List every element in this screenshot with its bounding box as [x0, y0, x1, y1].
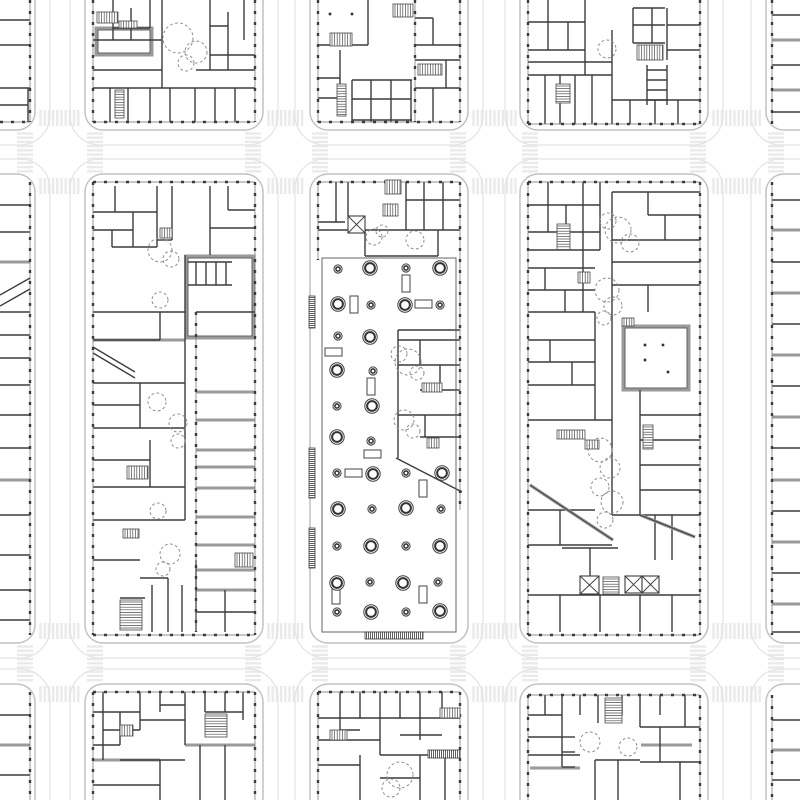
column-circle-icon: [433, 261, 447, 275]
column-circle-icon: [433, 604, 447, 618]
column-circle-icon: [367, 437, 375, 445]
planter-rect: [345, 469, 362, 477]
block-outline: [310, 0, 468, 130]
stair-icon: [97, 12, 118, 23]
column-circle-icon: [330, 430, 344, 444]
stair-icon: [637, 45, 663, 60]
column-circle-icon: [369, 367, 377, 375]
column-circle-icon: [334, 265, 342, 273]
stair-icon: [385, 180, 401, 194]
column-dot: [662, 344, 665, 347]
column-circle-icon: [333, 402, 341, 410]
thick-wall-room: [623, 326, 689, 390]
stair-icon: [115, 90, 124, 118]
column-circle-icon: [364, 539, 378, 553]
column-dot: [644, 359, 647, 362]
block-bot-far-left: [0, 669, 50, 800]
column-circle-icon: [363, 261, 377, 275]
column-circle-icon: [396, 576, 410, 590]
block-top-left: [70, 0, 278, 145]
column-circle-icon: [437, 505, 445, 513]
column-circle-icon: [435, 466, 449, 480]
column-circle-icon: [402, 264, 410, 272]
stair-icon: [337, 84, 346, 116]
column-circle-icon: [436, 301, 444, 309]
column-circle-icon: [331, 502, 345, 516]
stair-icon: [605, 698, 622, 723]
stair-icon: [120, 600, 142, 630]
column-dot: [351, 13, 354, 16]
block-outline: [85, 684, 263, 800]
column-circle-icon: [366, 578, 374, 586]
elevator-x-icon: [580, 576, 599, 594]
column-circle-icon: [367, 301, 375, 309]
column-circle-icon: [331, 297, 345, 311]
column-circle-icon: [399, 501, 413, 515]
stair-icon: [120, 725, 133, 736]
planter-rect: [364, 450, 381, 458]
block-top-mid: [295, 0, 483, 145]
column-circle-icon: [398, 298, 412, 312]
block-top-right: [505, 0, 723, 145]
elevator-x-icon: [642, 576, 659, 593]
column-circle-icon: [364, 605, 378, 619]
masterplan-canvas: [0, 0, 800, 800]
planter-rect: [419, 586, 427, 603]
city-plan-svg: [0, 0, 800, 800]
stair-icon: [578, 272, 590, 283]
column-circle-icon: [433, 539, 447, 553]
stair-icon: [440, 708, 460, 718]
elevator-x-icon: [348, 216, 365, 233]
stair-icon: [643, 425, 653, 449]
stair-icon: [330, 33, 352, 46]
planter-rect: [350, 296, 358, 313]
stair-icon: [127, 466, 148, 479]
column-circle-icon: [366, 467, 380, 481]
thick-wall-room: [96, 28, 152, 55]
block-mid-far-right: [751, 159, 800, 658]
column-circle-icon: [334, 332, 342, 340]
canopy-hatch: [365, 632, 423, 639]
column-circle-icon: [434, 578, 442, 586]
column-circle-icon: [368, 505, 376, 513]
stair-icon: [603, 577, 619, 594]
column-circle-icon: [330, 363, 344, 377]
column-circle-icon: [333, 469, 341, 477]
block-mid-right: [505, 159, 723, 658]
block-top-far-right: [751, 0, 800, 145]
stair-icon: [205, 714, 227, 737]
planter-rect: [419, 480, 427, 497]
column-circle-icon: [330, 576, 344, 590]
stair-icon: [622, 318, 634, 326]
canopy-hatch: [309, 528, 315, 568]
column-dot: [644, 344, 647, 347]
block-mid-center: [295, 159, 483, 658]
canopy-hatch: [309, 296, 315, 328]
column-circle-icon: [333, 608, 341, 616]
stair-icon: [235, 553, 253, 567]
block-bot-mid: [295, 669, 483, 800]
stair-icon: [383, 204, 398, 216]
stair-icon: [557, 430, 585, 439]
block-bot-left: [70, 669, 278, 800]
block-bot-right: [505, 669, 723, 800]
canopy-hatch: [428, 750, 460, 758]
column-circle-icon: [402, 469, 410, 477]
stair-icon: [557, 224, 570, 250]
stair-icon: [427, 438, 439, 448]
stair-icon: [123, 529, 139, 538]
canopy-hatch: [309, 448, 315, 498]
column-dot: [667, 371, 670, 374]
stair-icon: [393, 4, 413, 17]
planter-rect: [325, 348, 342, 356]
elevator-x-icon: [625, 576, 642, 593]
column-circle-icon: [402, 542, 410, 550]
stair-icon: [556, 84, 570, 103]
stair-icon: [119, 21, 137, 28]
planter-rect: [402, 275, 410, 292]
stair-icon: [330, 730, 347, 740]
column-circle-icon: [363, 330, 377, 344]
block-outline: [520, 174, 708, 643]
planter-rect: [367, 378, 375, 395]
column-dot: [329, 13, 332, 16]
block-mid-far-left: [0, 159, 50, 658]
column-circle-icon: [333, 542, 341, 550]
stair-icon: [418, 64, 442, 75]
stair-icon: [422, 383, 442, 392]
planter-rect: [415, 300, 432, 308]
column-circle-icon: [365, 399, 379, 413]
block-bot-far-right: [751, 669, 800, 800]
block-mid-left: [70, 159, 278, 658]
block-top-far-left: [0, 0, 50, 145]
stair-icon: [160, 228, 172, 238]
column-circle-icon: [402, 608, 410, 616]
